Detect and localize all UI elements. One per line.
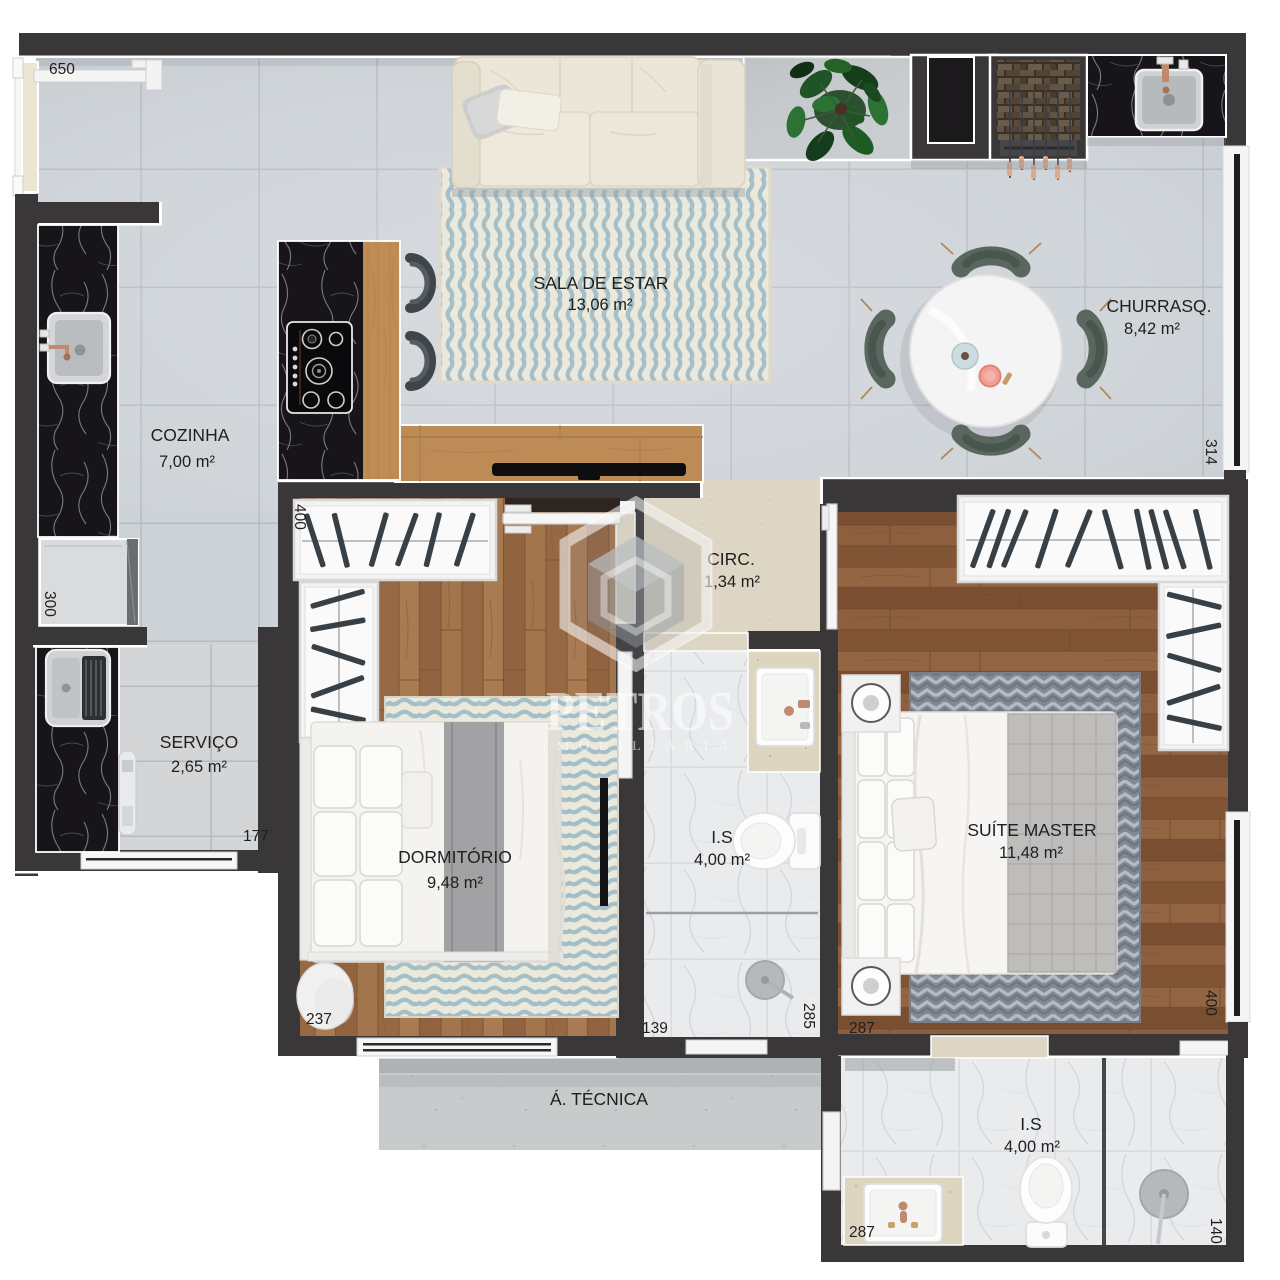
svg-text:I.S: I.S <box>711 827 732 847</box>
svg-text:400: 400 <box>291 504 308 530</box>
svg-text:314: 314 <box>1202 439 1219 465</box>
svg-text:287: 287 <box>849 1224 875 1241</box>
svg-text:IMOBILIÁRIA: IMOBILIÁRIA <box>542 739 738 753</box>
svg-text:7,00 m²: 7,00 m² <box>159 453 215 471</box>
svg-text:300: 300 <box>41 591 58 617</box>
svg-text:8,42 m²: 8,42 m² <box>1124 320 1180 338</box>
svg-text:287: 287 <box>849 1020 875 1037</box>
svg-text:SUÍTE MASTER: SUÍTE MASTER <box>967 820 1096 840</box>
svg-text:I.S: I.S <box>1020 1114 1041 1134</box>
svg-text:140: 140 <box>1207 1218 1224 1244</box>
svg-text:COZINHA: COZINHA <box>151 425 230 445</box>
svg-text:CIRC.: CIRC. <box>707 549 755 569</box>
svg-text:13,06 m²: 13,06 m² <box>567 296 633 314</box>
svg-text:4,00 m²: 4,00 m² <box>694 851 750 869</box>
svg-text:139: 139 <box>642 1020 668 1037</box>
svg-text:11,48 m²: 11,48 m² <box>999 844 1063 862</box>
svg-text:2,65 m²: 2,65 m² <box>171 758 227 776</box>
svg-text:DORMITÓRIO: DORMITÓRIO <box>398 846 512 867</box>
svg-text:650: 650 <box>49 61 75 78</box>
svg-text:SALA DE ESTAR: SALA DE ESTAR <box>534 273 669 293</box>
svg-text:237: 237 <box>306 1011 332 1028</box>
svg-text:9,48 m²: 9,48 m² <box>427 874 483 892</box>
svg-text:PETROS: PETROS <box>546 681 734 743</box>
svg-text:SERVIÇO: SERVIÇO <box>160 732 238 752</box>
svg-text:177: 177 <box>243 828 269 845</box>
svg-text:CHURRASQ.: CHURRASQ. <box>1106 296 1211 316</box>
svg-text:285: 285 <box>800 1003 817 1029</box>
svg-text:400: 400 <box>1202 990 1219 1016</box>
svg-text:4,00 m²: 4,00 m² <box>1004 1138 1060 1156</box>
svg-text:Á. TÉCNICA: Á. TÉCNICA <box>550 1089 648 1109</box>
